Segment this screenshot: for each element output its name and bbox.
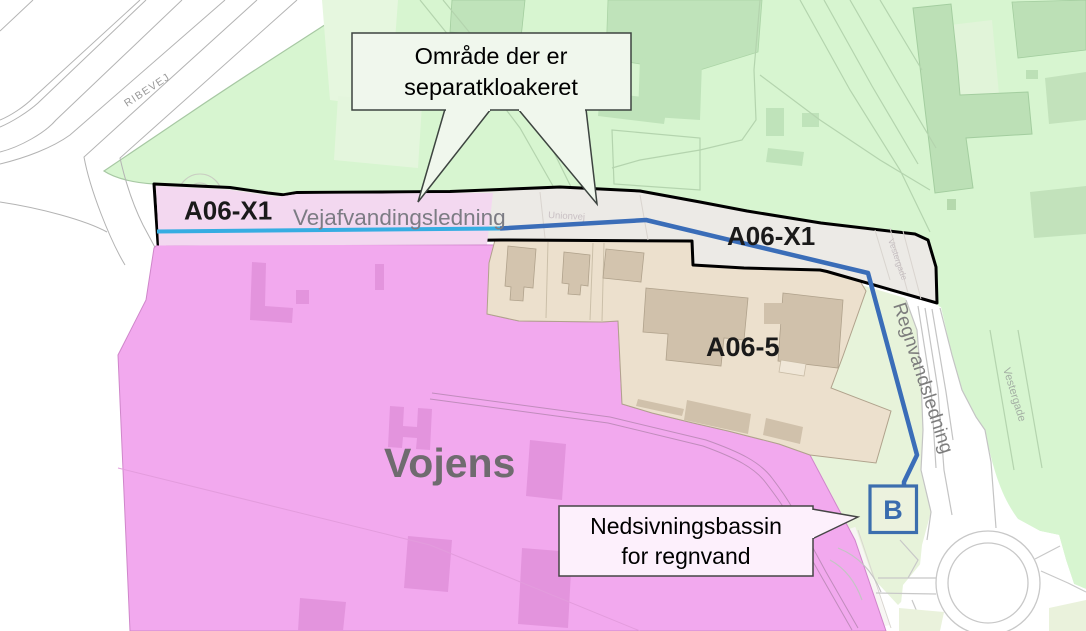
svg-text:B: B xyxy=(883,495,903,525)
svg-text:Unionvej: Unionvej xyxy=(548,210,585,223)
svg-text:A06-X1: A06-X1 xyxy=(727,221,815,251)
svg-text:separatkloakeret: separatkloakeret xyxy=(404,74,578,100)
svg-text:for regnvand: for regnvand xyxy=(621,543,750,569)
svg-text:Vejafvandingsledning: Vejafvandingsledning xyxy=(293,205,506,230)
svg-text:A06-5: A06-5 xyxy=(706,332,780,362)
svg-text:Vojens: Vojens xyxy=(384,440,515,486)
svg-text:A06-X1: A06-X1 xyxy=(184,196,272,226)
svg-text:Nedsivningsbassin: Nedsivningsbassin xyxy=(590,513,782,539)
svg-text:Område der er: Område der er xyxy=(415,43,568,69)
